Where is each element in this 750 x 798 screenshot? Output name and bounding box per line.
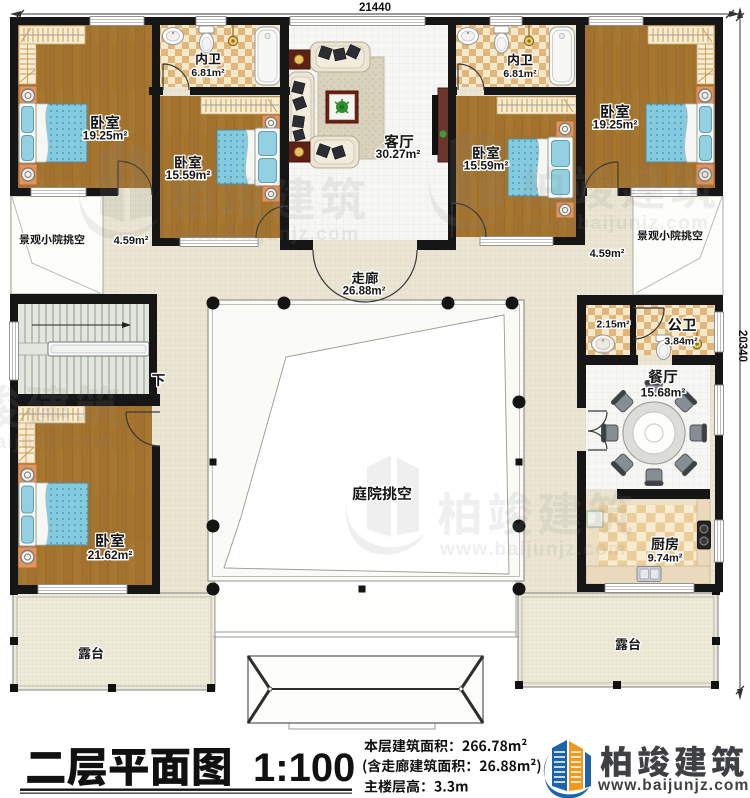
svg-text:6.81m²: 6.81m² xyxy=(191,67,225,79)
svg-text:www.baijunjz.com: www.baijunjz.com xyxy=(0,432,114,453)
svg-text:21440: 21440 xyxy=(359,2,391,14)
svg-text:30.27m²: 30.27m² xyxy=(376,147,421,161)
svg-text:4.59m²: 4.59m² xyxy=(590,248,625,260)
svg-text:4.59m²: 4.59m² xyxy=(114,235,149,247)
svg-text:www.baijunjz.com: www.baijunjz.com xyxy=(172,224,359,245)
svg-text:2.15m²: 2.15m² xyxy=(596,319,630,331)
svg-text:20340: 20340 xyxy=(736,330,748,362)
svg-text:www.baijunjz.com: www.baijunjz.com xyxy=(439,539,626,560)
svg-text:21.62m²: 21.62m² xyxy=(88,548,133,562)
svg-text:15.68m²: 15.68m² xyxy=(641,386,686,400)
svg-text:19.25m²: 19.25m² xyxy=(593,118,638,132)
svg-text:www.baijunjz.com: www.baijunjz.com xyxy=(597,777,749,794)
svg-text:9.74m²: 9.74m² xyxy=(648,553,683,565)
svg-text:1:100: 1:100 xyxy=(253,746,355,790)
svg-text:19.25m²: 19.25m² xyxy=(83,129,128,143)
svg-text:3.84m²: 3.84m² xyxy=(664,336,698,348)
svg-text:6.81m²: 6.81m² xyxy=(503,68,537,80)
svg-text:15.59m²: 15.59m² xyxy=(464,159,509,173)
svg-text:26.88m²: 26.88m² xyxy=(343,286,386,298)
svg-text:15.59m²: 15.59m² xyxy=(166,168,211,182)
